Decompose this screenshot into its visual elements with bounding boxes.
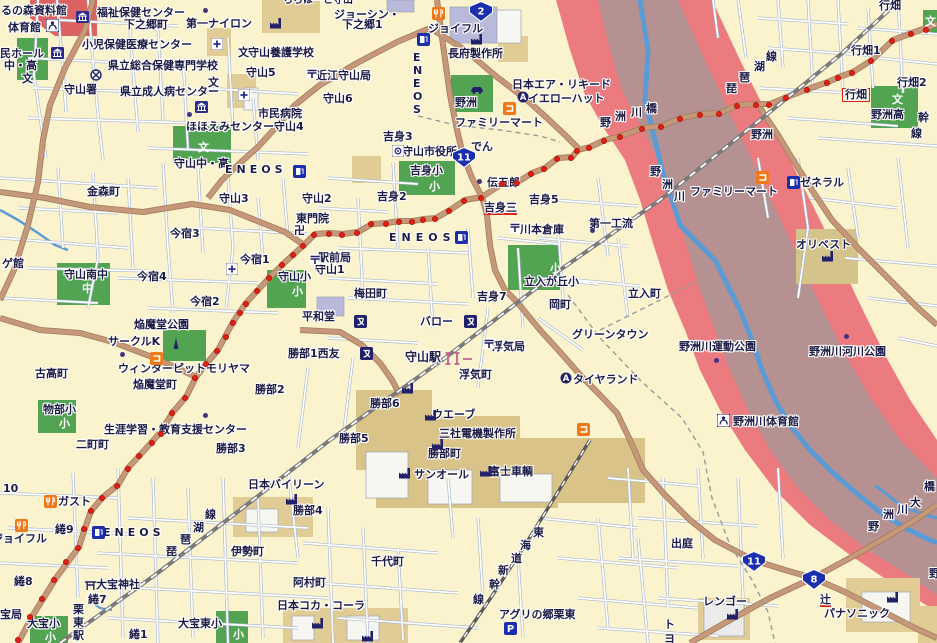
bus-route-dot [461, 198, 467, 204]
public-hall-icon [195, 101, 208, 113]
map-label: 駅 [73, 630, 84, 641]
bus-route-dot [889, 38, 895, 44]
map-label: 守山市役所 [402, 146, 457, 157]
map-label: 伊勢町 [231, 546, 264, 557]
map-label: 吉身2 [377, 191, 407, 202]
map-label: 野洲川体育館 [733, 416, 799, 427]
map-label: 湖 [193, 522, 204, 533]
map-label: 綣9 [55, 524, 74, 535]
bus-route-dot [432, 216, 438, 222]
convenience-store-icon [503, 102, 516, 115]
bus-route-dot [88, 508, 94, 514]
poi-dot [187, 112, 192, 117]
bus-route-dot [849, 70, 855, 76]
map-label: 体育館 [8, 22, 41, 33]
map-label: 浮気町 [459, 369, 492, 380]
map-label: 幹 [918, 112, 929, 123]
map-label: 立入町 [628, 288, 661, 299]
map-label: 小児保健医療センター [82, 39, 192, 50]
bus-route-dot [243, 301, 249, 307]
map-label: N [413, 65, 422, 76]
map-label: 新 [498, 565, 509, 576]
map-label: 小 [550, 263, 561, 274]
svg-text:11: 11 [747, 557, 761, 568]
factory-icon [401, 382, 414, 394]
poi-dot [714, 358, 719, 363]
map-label: 近江守山局 [316, 70, 371, 81]
map-label: アグリの郷栗東 [499, 609, 575, 620]
gas-station-icon [787, 176, 800, 189]
bus-route-dot [766, 102, 772, 108]
map-label: 大宝東小 [178, 618, 222, 629]
map-label: 守山養護学校 [248, 47, 314, 58]
map-label: 野洲川河川公園 [809, 346, 886, 357]
map-label: 大 [910, 497, 921, 508]
map-label: 野洲 [751, 129, 773, 140]
map-label: 橋 [924, 481, 935, 492]
bus-route-dot [136, 453, 142, 459]
map-label: 琵 [166, 546, 177, 557]
map-label: 今宿3 [170, 228, 200, 239]
svg-text:A: A [520, 93, 527, 103]
map-label: 勝部4 [293, 505, 323, 516]
map-label: 焔魔堂町 [133, 379, 177, 390]
poi-dot [203, 413, 208, 418]
map-label: 吉身5 [529, 194, 559, 205]
bus-route-dot [223, 334, 229, 340]
bus-route-dot [266, 275, 272, 281]
bus-route-dot [383, 221, 389, 227]
map-label: 川本倉庫 [520, 224, 564, 235]
map-label: 下之郷町 [124, 19, 168, 30]
bus-route-dot [716, 111, 722, 117]
bus-route-dot [541, 166, 547, 172]
map-label: サンオール [414, 469, 469, 480]
map-label: ENEOS [225, 164, 287, 175]
map-label: 守山3 [219, 193, 249, 204]
map-label: ガスト [58, 496, 91, 507]
map-label: 野 [600, 117, 611, 128]
bus-route-dot [514, 180, 520, 186]
supermarket-icon [360, 347, 373, 360]
factory-icon [470, 33, 483, 45]
map-label: 東 [73, 617, 84, 628]
map-label: 長府製作所 [448, 48, 503, 59]
bus-route-dot [182, 395, 188, 401]
map-label: 勝部5 [339, 433, 369, 444]
map-label: 下之郷1 [342, 19, 383, 30]
map-label: 小 [45, 632, 56, 643]
map-label: 守山2 [302, 193, 332, 204]
map-label: 立入が丘小 [524, 276, 579, 287]
map-label: 綣7 [88, 594, 107, 605]
poi-dot [477, 179, 482, 184]
bus-route-dot [339, 232, 345, 238]
map-label: 富士車輌 [489, 466, 533, 477]
map-label: 吉身3 [383, 131, 413, 142]
map-label: S [413, 104, 421, 115]
bus-route-dot [409, 219, 415, 225]
map-label: 川 [631, 107, 642, 118]
map-label: 古高町 [35, 368, 68, 379]
public-hall-icon [76, 11, 89, 23]
bus-route-dot [27, 614, 33, 620]
map-label: 民ホール [0, 48, 44, 59]
svg-text:8: 8 [811, 575, 818, 586]
bus-route-dot [326, 231, 332, 237]
map-label: 守山1 [315, 264, 345, 275]
map-label: 野 [929, 568, 937, 579]
bus-route-dot [63, 559, 69, 565]
monument-icon [172, 337, 180, 349]
map-label: ウエーブ [432, 409, 475, 420]
supermarket-icon [464, 315, 477, 328]
bus-route-dot [478, 195, 484, 201]
map-label: 綣8 [14, 576, 33, 587]
bus-route-dot [15, 637, 21, 643]
map-label: 県立総合保健専門学校 [108, 60, 218, 71]
map-label: O [413, 91, 422, 102]
bus-route-dot [158, 431, 164, 437]
map-label: E [413, 78, 421, 89]
map-label: 行畑2 [897, 77, 927, 88]
hospital-icon [238, 89, 250, 101]
map-label: 線 [766, 51, 777, 62]
map-label: 洲 [615, 111, 626, 122]
map-label: ほほえみセンター守山4 [186, 121, 304, 132]
factory-icon [821, 250, 834, 262]
map-label: 守山駅 [405, 351, 441, 363]
bus-route-dot [99, 495, 105, 501]
map-label: 幹 [489, 579, 500, 590]
map-label: 中 [82, 283, 93, 294]
gymnasium-icon [46, 19, 59, 32]
map-label: 線 [473, 594, 484, 605]
map-label: ヨ [664, 633, 675, 643]
map-label: 市民病院 [258, 108, 302, 119]
map-label: 梅田町 [354, 288, 387, 299]
bus-route-dot [528, 171, 534, 177]
map-label: 東 [533, 527, 544, 538]
factory-icon [269, 17, 282, 29]
map-label: 10 [3, 483, 18, 494]
map-label: 焔魔堂公園 [134, 319, 189, 330]
police-box-icon [90, 69, 102, 81]
map-label: タイヤランド [573, 374, 639, 385]
parking-icon: P [504, 622, 517, 635]
hospital-icon [211, 38, 223, 50]
factory-icon [726, 608, 739, 620]
poi-dot [203, 8, 208, 13]
poi-dot [590, 228, 595, 233]
map-label: 平和堂 [302, 311, 335, 322]
bus-route-dot [114, 483, 120, 489]
map-label: 守山中・高 [174, 158, 229, 169]
map-label: 野洲 [455, 97, 477, 108]
bus-route-dot [586, 145, 592, 151]
factory-icon [886, 591, 899, 603]
map-label: 岡町 [549, 299, 571, 310]
map-label: 洲 [883, 509, 894, 520]
map-label: 野洲高 [871, 109, 904, 120]
map-label: 線 [205, 509, 216, 520]
hospital-icon [226, 263, 238, 275]
post-office-icon [306, 68, 318, 79]
map-label: グリーンタウン [572, 329, 648, 340]
bus-route-dot [753, 102, 759, 108]
gymnasium-icon [717, 414, 730, 427]
poi-dot [844, 334, 849, 339]
bus-route-dot [311, 232, 317, 238]
map-label: 小 [429, 181, 440, 192]
map-label: パナソニック [824, 608, 890, 619]
map-label: 日本コカ・コーラ [277, 600, 365, 611]
map-label: 守山南中 [64, 269, 108, 280]
map-label: 県立成人病センター [120, 86, 219, 97]
map-label: 文 [22, 73, 33, 84]
convenience-store-icon [577, 423, 590, 436]
map-label: 生涯学習・教育支援センター [104, 424, 247, 435]
map-label: 綣1 [129, 629, 148, 640]
map-label: 川 [897, 504, 908, 515]
map-label: 千代町 [371, 556, 404, 567]
map-label: 勝部3 [216, 443, 246, 454]
map-label: 二町町 [76, 439, 109, 450]
map-label: 中・高 [4, 60, 37, 71]
map-label: 野洲川運動公園 [679, 341, 756, 352]
bus-route-dot [192, 375, 198, 381]
map-label: 守山5 [246, 67, 276, 78]
bus-route-dot [923, 27, 929, 33]
map-label: 出庭 [671, 538, 693, 549]
convenience-store-icon [150, 352, 163, 365]
gas-station-icon [293, 165, 306, 178]
post-office-icon [309, 254, 321, 265]
supermarket-icon [354, 315, 367, 328]
map-label: 守山小 [278, 271, 311, 282]
map-label: 橋 [646, 103, 657, 114]
map-label: 野 [868, 521, 879, 532]
svg-text:P: P [507, 624, 514, 635]
svg-text:2: 2 [478, 7, 485, 18]
map-label: 吉身7 [477, 291, 507, 302]
bus-route-dot [125, 466, 131, 472]
bus-route-dot [658, 124, 664, 130]
bus-route-dot [908, 31, 914, 37]
bus-route-dot [835, 75, 841, 81]
map-label: 琶 [739, 72, 750, 83]
map-label: ENEOS [389, 232, 456, 243]
restaurant-icon [432, 7, 445, 20]
map-label: ゼネラル [800, 177, 844, 188]
bus-route-dot [203, 361, 209, 367]
map-label: ENEOS [103, 527, 165, 538]
bus-route-dot [254, 288, 260, 294]
bus-route-dot [51, 577, 57, 583]
route-11-badge: 11 [452, 147, 476, 168]
shrine-torii-icon [84, 579, 97, 591]
map-label: 東門院 [296, 213, 329, 224]
map-label: 守山署 [64, 84, 97, 95]
map-label: 吉身小 [410, 165, 443, 176]
bus-route-dot [574, 148, 580, 154]
bus-route-dot [868, 58, 874, 64]
poi-dot [120, 352, 125, 357]
bus-route-dot [279, 262, 285, 268]
map-label: 第一工流 [589, 218, 633, 229]
bus-route-dot [783, 95, 789, 101]
map-label: 勝部1西友 [288, 348, 340, 359]
map-label: ジョイフル [0, 533, 47, 544]
gas-station-icon [417, 33, 430, 46]
svg-text:A: A [563, 374, 570, 384]
bus-route-dot [804, 87, 810, 93]
map-label: E [413, 52, 421, 63]
auto-parts-icon: A [517, 91, 529, 103]
map-label: 物部小 [43, 404, 76, 415]
route-2-badge: 2 [469, 1, 493, 22]
bus-route-dot [601, 138, 607, 144]
map-label: るの森資料館 [1, 5, 67, 16]
bus-route-dot [237, 310, 243, 316]
map-label: 日本エア・リキード [512, 79, 611, 90]
route-8-badge: 8 [802, 569, 826, 590]
factory-icon [479, 465, 492, 477]
map-label: 勝部2 [255, 384, 285, 395]
map-label: 小 [292, 286, 303, 297]
factory-icon [361, 630, 374, 642]
post-office-icon [483, 338, 495, 349]
map-label: 洲 [662, 179, 673, 190]
map-label: 琵 [726, 83, 737, 94]
factory-icon [431, 438, 444, 450]
map-label: ファミリーマート [455, 117, 543, 128]
restaurant-icon [15, 519, 28, 532]
route-11-badge: 11 [742, 551, 766, 572]
map-label: 今宿1 [240, 254, 270, 265]
bus-route-dot [149, 440, 155, 446]
map-label: 第一ナイロン [186, 18, 252, 29]
map-label: 今宿2 [190, 296, 220, 307]
bus-route-dot [169, 410, 175, 416]
bus-route-dot [39, 596, 45, 602]
map-label: 小 [59, 418, 70, 429]
map-label: ト [664, 619, 675, 630]
bus-route-dot [354, 230, 360, 236]
bus-route-dot [290, 252, 296, 258]
map-label: 行畑1 [851, 45, 881, 56]
map-label: 守山6 [323, 93, 353, 104]
map-label: レンゴー [703, 596, 747, 607]
map-label: 卍 [294, 225, 305, 236]
bus-route-dot [396, 219, 402, 225]
map-label: 行畑 [879, 0, 901, 11]
map-label: 駅前局 [318, 252, 351, 263]
map-label: ゲ館 [2, 258, 24, 269]
bus-route-dot [300, 243, 306, 249]
restaurant-icon [44, 495, 57, 508]
map-label: 行畑 [842, 88, 870, 102]
map-canvas[interactable]: るの森資料館体育館民ホール中・高文守山署福祉保健センター下之郷町第一ナイロン小児… [0, 0, 937, 643]
factory-icon [311, 617, 324, 629]
map-label: 栗 [73, 604, 84, 615]
map-label: 川 [674, 191, 685, 202]
factory-icon [285, 493, 298, 505]
map-label: 文 [925, 16, 936, 27]
map-label: 勝部6 [370, 398, 400, 409]
map-label: 浮気局 [492, 341, 525, 352]
bus-route-dot [81, 526, 87, 532]
bus-route-dot [568, 155, 574, 161]
map-label: 三社電機製作所 [439, 428, 516, 439]
map-label: 線 [911, 128, 922, 139]
map-label: 福祉保健センター [97, 7, 185, 18]
map-label: 小 [233, 629, 244, 640]
map-label: 宝局 [0, 609, 22, 620]
driving-school-car-icon [470, 84, 484, 94]
map-label: 道 [511, 553, 522, 564]
map-label: 文 [208, 77, 219, 88]
map-label: 琶 [180, 534, 191, 545]
map-label: ファミリーマート [690, 186, 778, 197]
bus-route-dot [617, 134, 623, 140]
bus-route-dot [554, 156, 560, 162]
map-label: 野 [650, 166, 661, 177]
gas-station-icon [455, 231, 468, 244]
bus-route-dot [368, 221, 374, 227]
map-label: 海 [520, 540, 531, 551]
bus-route-dot [420, 217, 426, 223]
bus-route-dot [446, 208, 452, 214]
public-hall-icon [51, 47, 64, 59]
city-office-icon [392, 145, 404, 157]
bus-route-dot [734, 103, 740, 109]
convenience-store-icon [756, 171, 769, 184]
bus-route-dot [75, 545, 81, 551]
bus-route-dot [677, 116, 683, 122]
svg-text:11: 11 [457, 153, 471, 164]
map-label: サークルK [108, 336, 160, 347]
post-office-icon [509, 222, 521, 233]
factory-icon [398, 467, 411, 479]
bus-route-dot [639, 126, 645, 132]
gas-station-icon [92, 526, 105, 539]
map-label: 金森町 [87, 186, 120, 197]
bus-route-dot [499, 181, 505, 187]
map-label: イエローハット [528, 93, 605, 104]
map-label: 湖 [754, 61, 765, 72]
map-label: 文 [198, 142, 209, 153]
map-label: 阿村町 [293, 577, 326, 588]
map-label: 辻 [820, 594, 831, 607]
map-label: ウィンターピットモリヤマ [118, 363, 250, 374]
auto-parts-icon: A [560, 372, 572, 384]
map-label: 文 [892, 94, 903, 105]
train-station-mark-icon [444, 351, 478, 366]
map-label: 大宝小 [27, 618, 60, 629]
factory-icon [424, 409, 437, 421]
bus-route-dot [824, 80, 830, 86]
map-label: オリベスト [796, 239, 851, 250]
bus-route-dot [697, 112, 703, 118]
map-label: ちらほーと守山 [283, 0, 353, 6]
map-label: バロー [420, 316, 453, 327]
map-label: 吉身三 [484, 202, 517, 215]
map-label: 日本バイリーン [248, 479, 324, 490]
bus-route-dot [214, 348, 220, 354]
bus-route-dot [230, 320, 236, 326]
map-label: 大宝神社 [96, 579, 140, 590]
